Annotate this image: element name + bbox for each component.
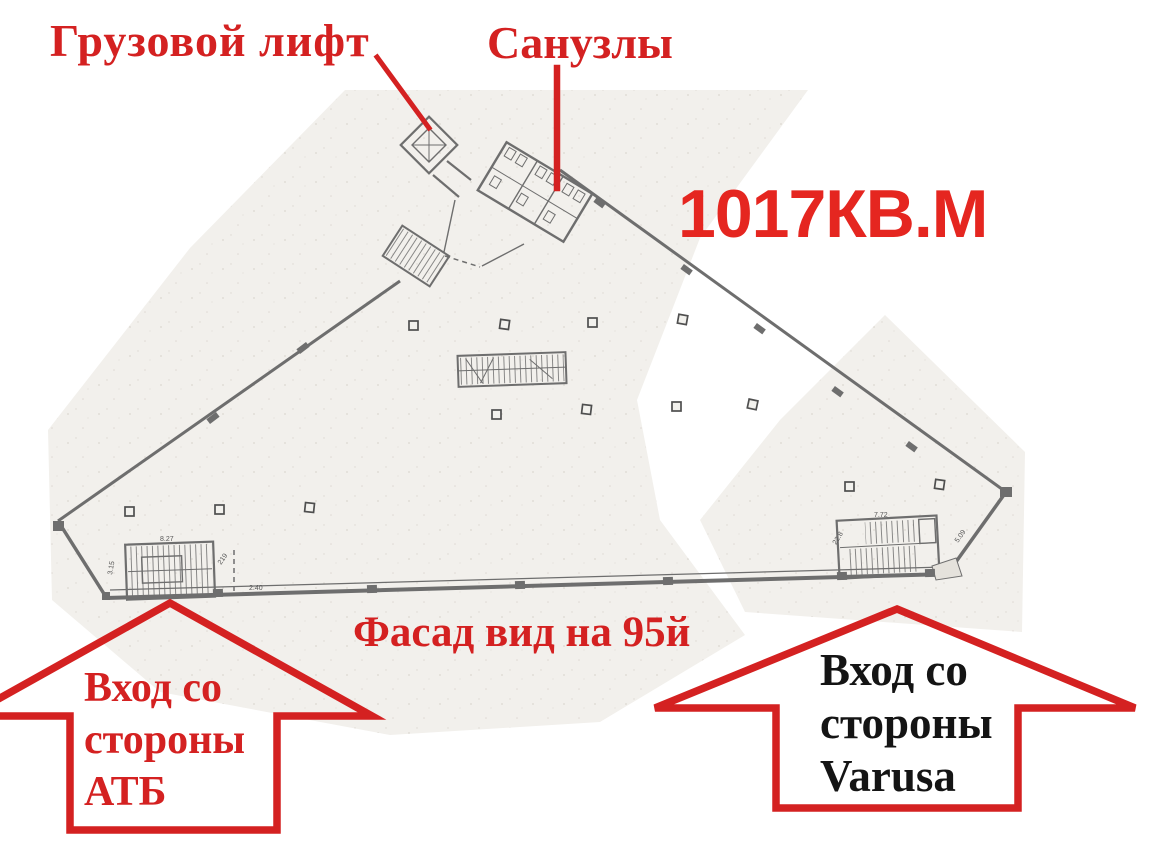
corner-block [102,592,110,600]
freight-elevator-label: Грузовой лифт [50,14,370,67]
entrance-atb-label-line: АТБ [84,766,245,818]
dimension-mark: 7.72 [874,512,888,519]
entrance-atb-label-line: стороны [84,714,245,766]
entrance-atb-label: Вход со стороны АТБ [84,662,245,818]
entrance-varusa-label-line: стороны [820,697,993,750]
corner-block [53,521,64,531]
central-hatch-strip [458,352,567,387]
bathrooms-label: Санузлы [487,16,673,69]
dimension-mark: 8.27 [160,536,174,543]
entrance-varusa-label-line: Вход со [820,644,993,697]
area-label: 1017КВ.М [678,180,987,248]
facade-label: Фасад вид на 95й [353,608,690,657]
floor-plan-page: 8.27 2.40 7.72 22.8 5.09 3.15 219 Грузов… [0,0,1163,845]
entrance-varusa-label: Вход со стороны Varusa [820,644,993,803]
entrance-atb-label-line: Вход со [84,662,245,714]
dimension-mark: 2.40 [249,585,263,592]
entrance-varusa-label-line: Varusa [820,750,993,803]
staircase-left [125,542,215,600]
corner-block [1000,487,1012,497]
